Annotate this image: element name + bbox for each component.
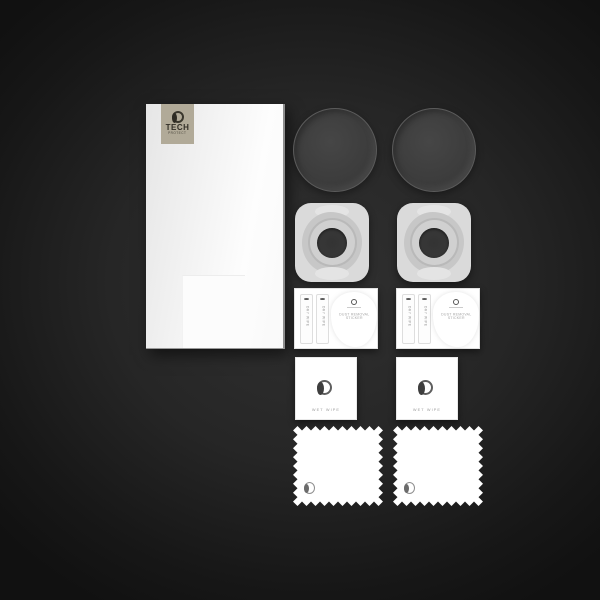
dust-removal-sticker: DUST REMOVAL STICKER <box>433 292 479 347</box>
logo-subtext: PROTECT <box>168 132 186 134</box>
strip-label: DRY WIPE <box>321 306 324 327</box>
frame-ring <box>310 220 355 265</box>
installation-frame-2 <box>397 203 471 282</box>
dry-wipe-strip: DRY WIPE <box>300 294 313 344</box>
wet-wipe-label: WET WIPE <box>310 408 343 412</box>
product-flatlay-scene: TECH PROTECT DRY WIPE DRY W <box>0 0 600 600</box>
tech-protect-ring-icon <box>418 380 433 395</box>
box-window <box>182 275 245 348</box>
tech-protect-ring-icon <box>304 298 309 300</box>
frame-adhesive-pad <box>404 212 464 274</box>
box-brand-logo: TECH PROTECT <box>161 104 194 144</box>
dry-wipe-strip: DRY WIPE <box>316 294 329 344</box>
dry-wipe-strip: DRY WIPE <box>418 294 431 344</box>
frame-lens-hole <box>419 228 449 258</box>
tech-protect-ring-icon <box>317 380 332 395</box>
frame-adhesive-pad <box>302 212 362 274</box>
tech-protect-ring-icon <box>320 298 325 300</box>
sticker-label: DUST REMOVAL STICKER <box>441 313 471 320</box>
wet-wipe-sachet-1: WET WIPE <box>295 357 357 420</box>
dry-wipe-strip: DRY WIPE <box>402 294 415 344</box>
accessory-card-1: DRY WIPE DRY WIPE DUST REMOVAL STICKER <box>294 288 378 349</box>
wet-wipe-sachet-2: WET WIPE <box>396 357 458 420</box>
dust-removal-sticker: DUST REMOVAL STICKER <box>331 292 377 347</box>
divider <box>347 307 361 308</box>
logo-ring-icon <box>172 111 184 123</box>
cloth-logo-stamp-icon <box>304 482 315 494</box>
product-box: TECH PROTECT <box>146 104 285 349</box>
lens-glass-disc-2 <box>392 108 476 192</box>
wet-wipe-label: WET WIPE <box>411 408 444 412</box>
frame-lens-hole <box>317 228 347 258</box>
tech-protect-ring-icon <box>453 299 459 305</box>
tech-protect-ring-icon <box>422 298 427 300</box>
divider <box>449 307 463 308</box>
accessory-card-2: DRY WIPE DRY WIPE DUST REMOVAL STICKER <box>396 288 480 349</box>
tech-protect-ring-icon <box>406 298 411 300</box>
strip-label: DRY WIPE <box>407 306 410 327</box>
strip-label: DRY WIPE <box>423 306 426 327</box>
microfiber-cloth-1 <box>293 426 383 506</box>
sticker-label: DUST REMOVAL STICKER <box>339 313 369 320</box>
installation-frame-1 <box>295 203 369 282</box>
frame-ring <box>412 220 457 265</box>
strip-label: DRY WIPE <box>305 306 308 327</box>
tech-protect-ring-icon <box>351 299 357 305</box>
lens-glass-disc-1 <box>293 108 377 192</box>
cloth-logo-stamp-icon <box>404 482 415 494</box>
microfiber-cloth-2 <box>393 426 483 506</box>
